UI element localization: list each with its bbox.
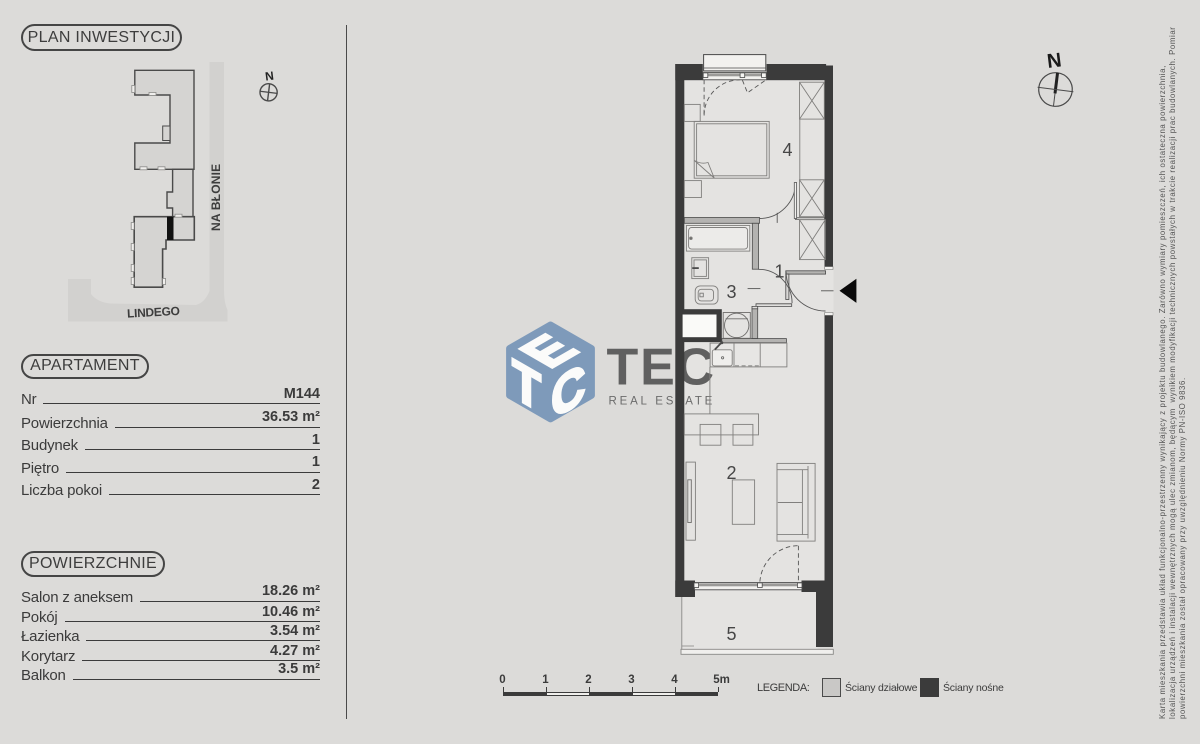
svg-text:TEC: TEC	[607, 339, 716, 397]
svg-text:2: 2	[727, 463, 737, 483]
svg-text:1: 1	[775, 262, 785, 282]
svg-text:NA BŁONIE: NA BŁONIE	[209, 164, 223, 231]
svg-text:5: 5	[727, 624, 737, 644]
svg-text:4: 4	[783, 140, 793, 160]
svg-text:N: N	[1046, 49, 1063, 73]
svg-text:N: N	[264, 69, 274, 84]
svg-text:LINDEGO: LINDEGO	[127, 304, 180, 321]
svg-text:REAL ESTATE: REAL ESTATE	[609, 396, 716, 408]
svg-text:3: 3	[727, 282, 737, 302]
